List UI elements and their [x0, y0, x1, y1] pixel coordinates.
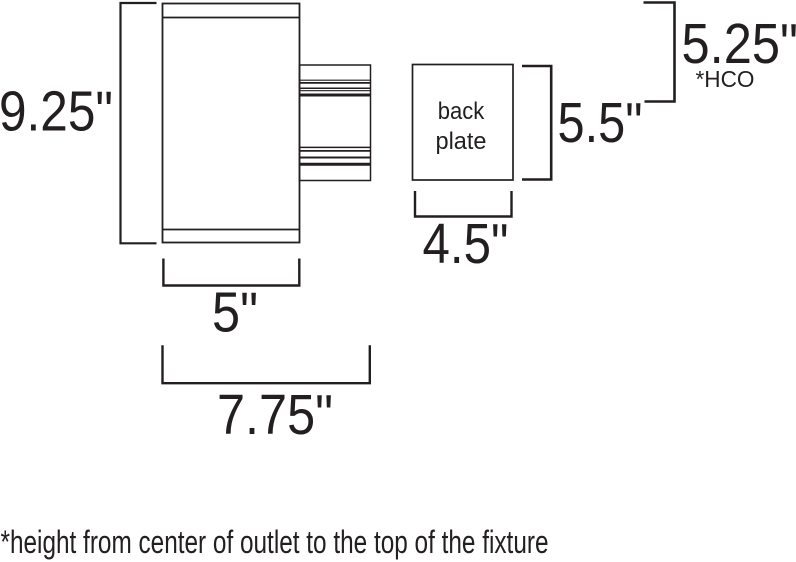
svg-text:4.5": 4.5": [423, 212, 509, 276]
svg-text:*height from center of outlet: *height from center of outlet to the top…: [1, 524, 549, 560]
svg-text:*HCO: *HCO: [696, 66, 755, 92]
svg-text:5": 5": [212, 281, 258, 345]
svg-text:9.25": 9.25": [0, 80, 113, 144]
svg-text:plate: plate: [436, 128, 487, 155]
svg-text:5.5": 5.5": [558, 91, 643, 155]
svg-text:back: back: [438, 98, 485, 125]
svg-text:7.75": 7.75": [217, 383, 333, 447]
